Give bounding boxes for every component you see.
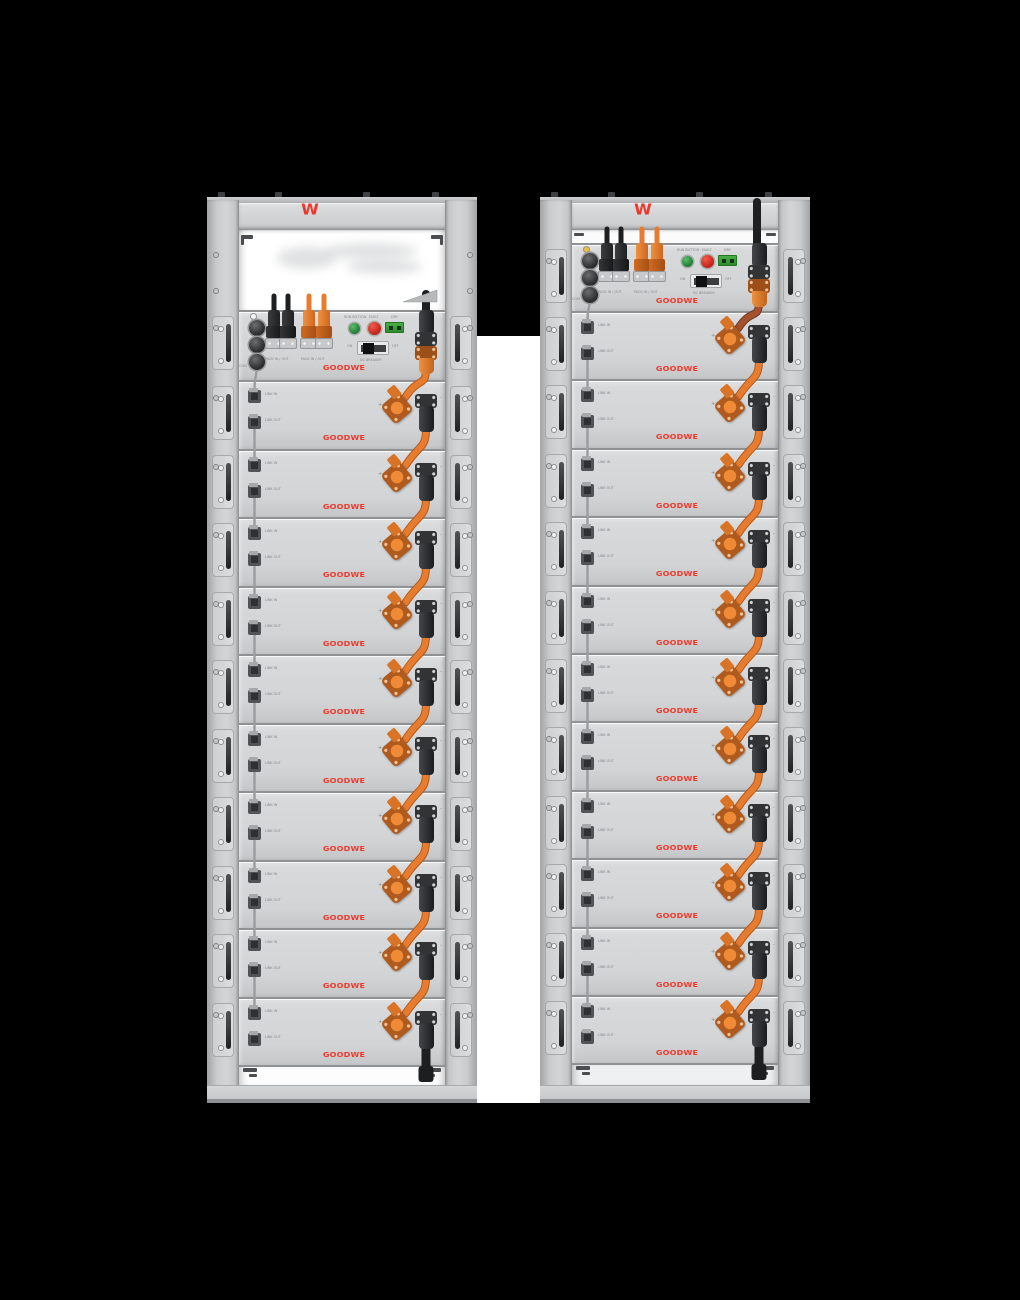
com-round-connector-1 — [582, 253, 598, 269]
com-round-connector-3 — [249, 354, 265, 370]
link-out-connector — [581, 826, 594, 839]
link-out-connector — [581, 552, 594, 565]
run-button — [682, 256, 693, 267]
link-out-connector — [581, 621, 594, 634]
negative-power-connector — [752, 679, 767, 705]
link-out-connector — [248, 416, 261, 429]
cable-bracket-wedge — [403, 290, 437, 302]
negative-power-connector — [419, 817, 434, 843]
link-in-connector — [248, 1007, 261, 1020]
link-in-connector — [248, 527, 261, 540]
pack-negative-connector-2 — [615, 243, 627, 287]
dc-breaker-switch — [357, 341, 389, 355]
link-out-connector — [248, 690, 261, 703]
pack-positive-connector-2 — [318, 310, 330, 354]
link-out-connector — [581, 484, 594, 497]
pack-positive-connector-1 — [303, 310, 315, 354]
com-round-connector-1 — [249, 320, 265, 336]
negative-power-connector — [752, 405, 767, 431]
scene: W COM PACK IN / OUT PACK IN / OUT RUN BU… — [0, 0, 1020, 1300]
negative-power-connector — [752, 542, 767, 568]
battery-positive-terminal — [419, 358, 434, 374]
link-in-connector — [581, 731, 594, 744]
link-out-connector — [248, 553, 261, 566]
negative-power-connector — [752, 953, 767, 979]
link-out-connector — [581, 894, 594, 907]
link-out-connector — [248, 1033, 261, 1046]
negative-power-connector — [419, 886, 434, 912]
com-round-connector-3 — [582, 287, 598, 303]
battery-negative-flange — [748, 265, 770, 279]
negative-power-connector — [752, 337, 767, 363]
pack-positive-connector-1 — [636, 243, 648, 287]
com-round-connector-2 — [249, 337, 265, 353]
rack-left: W COM PACK IN / OUT PACK IN / OUT RUN BU… — [207, 197, 477, 1103]
link-in-connector — [248, 664, 261, 677]
dry-contact-terminal — [385, 322, 404, 333]
link-in-connector — [581, 868, 594, 881]
link-out-connector — [248, 896, 261, 909]
link-out-connector — [248, 485, 261, 498]
dry-contact-terminal — [718, 255, 737, 266]
link-in-connector — [581, 321, 594, 334]
negative-power-connector — [419, 612, 434, 638]
com-round-connector-2 — [582, 270, 598, 286]
link-out-connector — [581, 689, 594, 702]
link-out-connector — [581, 757, 594, 770]
link-in-connector — [581, 595, 594, 608]
negative-power-connector — [419, 1023, 434, 1049]
link-out-connector — [248, 622, 261, 635]
termination-cap — [419, 1066, 434, 1082]
link-in-connector — [581, 458, 594, 471]
link-out-connector — [581, 963, 594, 976]
link-in-connector — [248, 596, 261, 609]
negative-power-connector — [419, 475, 434, 501]
status-indicator-led — [584, 247, 589, 252]
negative-power-connector — [752, 611, 767, 637]
negative-power-connector — [419, 954, 434, 980]
battery-negative-terminal — [419, 310, 434, 334]
link-in-connector — [248, 870, 261, 883]
link-in-connector — [581, 526, 594, 539]
link-out-connector — [248, 964, 261, 977]
negative-power-connector — [419, 543, 434, 569]
link-out-connector — [581, 347, 594, 360]
negative-power-connector — [752, 884, 767, 910]
negative-power-connector — [752, 474, 767, 500]
pack-positive-connector-2 — [651, 243, 663, 287]
run-button — [349, 323, 360, 334]
status-indicator-led — [251, 314, 256, 319]
fault-button — [368, 322, 381, 335]
white-backdrop — [477, 336, 540, 1103]
link-in-connector — [581, 663, 594, 676]
link-in-connector — [581, 800, 594, 813]
link-out-connector — [248, 759, 261, 772]
negative-power-connector — [419, 406, 434, 432]
link-out-connector — [248, 827, 261, 840]
pack-negative-connector-2 — [282, 310, 294, 354]
battery-positive-terminal — [752, 291, 767, 307]
negative-power-connector — [752, 1021, 767, 1047]
link-in-connector — [248, 938, 261, 951]
link-in-connector — [248, 459, 261, 472]
link-in-connector — [581, 389, 594, 402]
battery-negative-flange — [415, 332, 437, 346]
battery-negative-terminal — [752, 243, 767, 267]
negative-power-connector — [419, 680, 434, 706]
negative-power-connector — [752, 816, 767, 842]
link-in-connector — [581, 937, 594, 950]
link-in-connector — [248, 733, 261, 746]
negative-power-connector — [419, 749, 434, 775]
link-in-connector — [581, 1005, 594, 1018]
link-in-connector — [248, 390, 261, 403]
link-in-connector — [248, 801, 261, 814]
negative-power-connector — [752, 747, 767, 773]
link-out-connector — [581, 415, 594, 428]
dc-breaker-switch — [690, 274, 722, 288]
link-out-connector — [581, 1031, 594, 1044]
fault-button — [701, 255, 714, 268]
termination-cap — [752, 1064, 767, 1080]
rack-right: W COM PACK IN / OUT PACK IN / OUT RUN BU… — [540, 197, 810, 1103]
